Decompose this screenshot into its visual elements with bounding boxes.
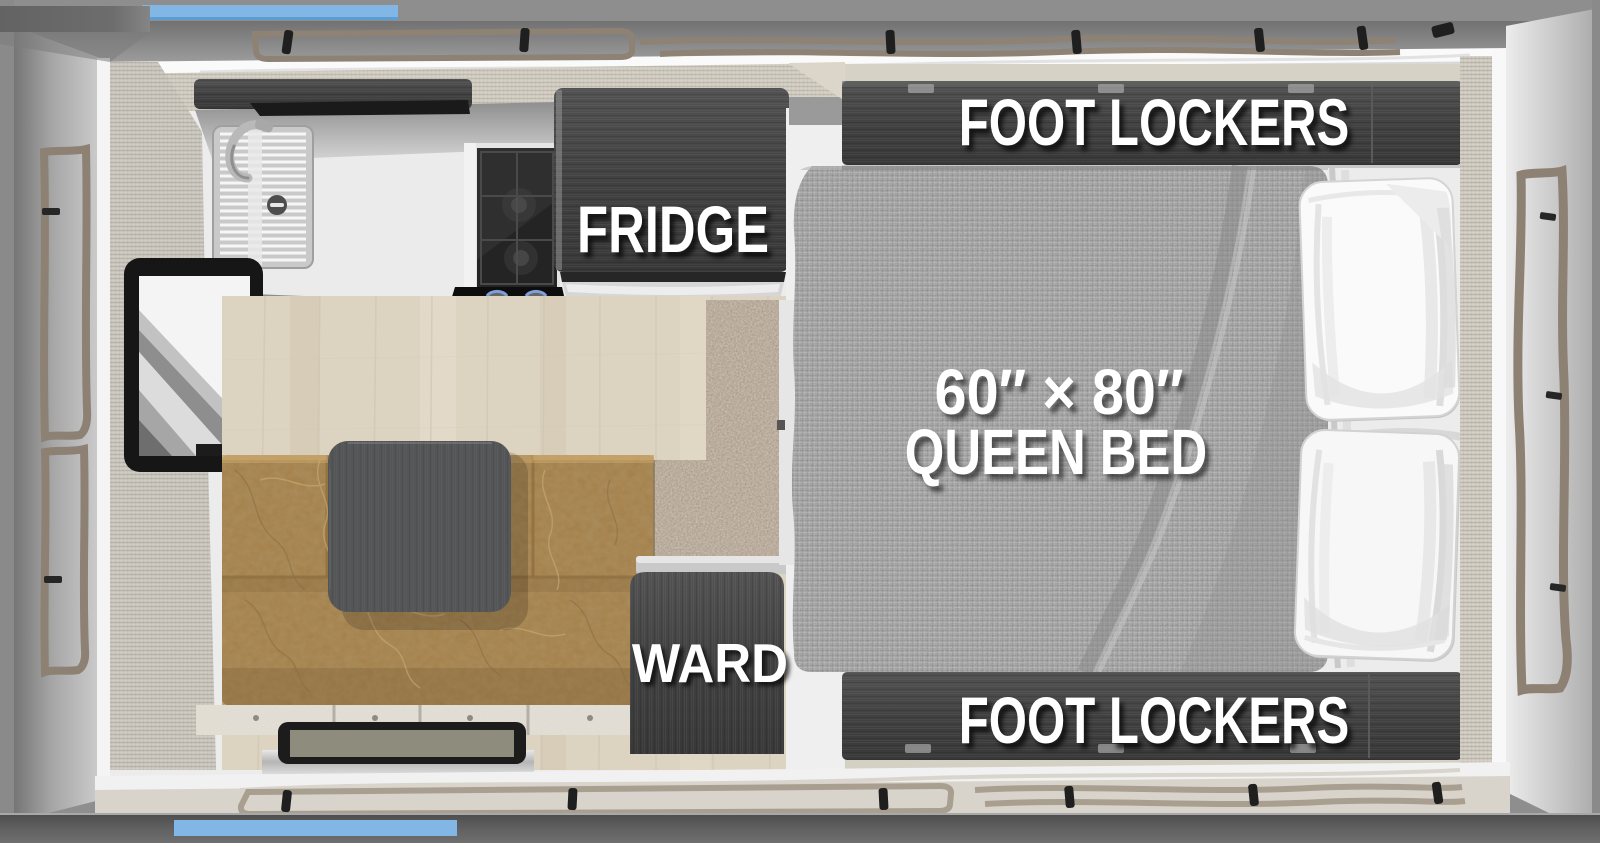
svg-text:FOOT LOCKERS: FOOT LOCKERS <box>959 86 1350 160</box>
svg-text:FOOT LOCKERS: FOOT LOCKERS <box>959 684 1350 758</box>
svg-text:FRIDGE: FRIDGE <box>577 194 769 267</box>
svg-text:QUEEN BED: QUEEN BED <box>905 418 1207 489</box>
svg-text:WARD: WARD <box>632 633 788 694</box>
